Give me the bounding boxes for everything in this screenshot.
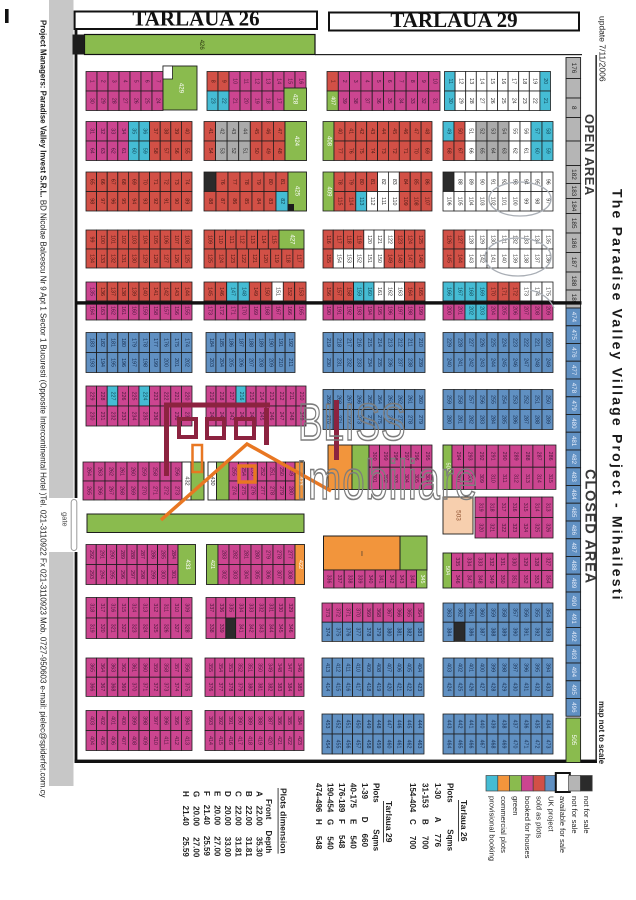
svg-text:423: 423 (296, 736, 302, 745)
svg-text:226: 226 (479, 338, 485, 347)
svg-text:120: 120 (366, 235, 372, 244)
svg-text:190: 190 (267, 338, 273, 347)
svg-text:88: 88 (207, 198, 213, 204)
svg-text:141: 141 (490, 254, 496, 263)
svg-text:409: 409 (326, 186, 332, 197)
svg-text:257: 257 (468, 395, 474, 404)
svg-text:351: 351 (511, 575, 517, 584)
svg-text:260: 260 (130, 467, 136, 476)
svg-text:326: 326 (163, 624, 169, 633)
svg-text:328: 328 (184, 624, 190, 633)
svg-text:288: 288 (129, 550, 135, 559)
svg-text:210: 210 (277, 358, 283, 367)
svg-text:308: 308 (287, 570, 293, 579)
svg-text:304: 304 (243, 570, 249, 579)
svg-text:79: 79 (255, 179, 261, 185)
svg-text:363: 363 (110, 663, 116, 672)
svg-text:373: 373 (163, 682, 169, 691)
svg-text:332: 332 (488, 557, 494, 566)
svg-text:116: 116 (325, 235, 331, 243)
svg-text:309: 309 (184, 603, 190, 612)
svg-text:444: 444 (416, 720, 422, 729)
svg-text:324: 324 (141, 624, 147, 633)
svg-text:504: 504 (444, 566, 450, 575)
svg-text:209: 209 (545, 306, 551, 315)
svg-text:496: 496 (570, 702, 577, 713)
svg-text:147: 147 (407, 254, 413, 263)
svg-text:157: 157 (335, 287, 341, 296)
svg-text:175: 175 (545, 287, 551, 296)
svg-text:381: 381 (256, 682, 262, 691)
svg-text:113: 113 (249, 235, 255, 243)
svg-text:106: 106 (446, 197, 452, 206)
svg-text:474: 474 (570, 312, 577, 323)
svg-text:233: 233 (120, 412, 126, 421)
svg-text:96: 96 (545, 179, 551, 185)
svg-text:3: 3 (352, 80, 358, 83)
svg-text:317: 317 (99, 603, 105, 612)
svg-text:329: 329 (287, 603, 293, 612)
svg-text:401: 401 (110, 716, 116, 725)
svg-text:168: 168 (468, 287, 474, 296)
svg-text:46: 46 (402, 128, 408, 134)
svg-text:391: 391 (523, 627, 529, 636)
svg-text:277: 277 (287, 550, 293, 559)
svg-text:55: 55 (512, 128, 518, 134)
svg-text:27: 27 (479, 98, 485, 104)
svg-text:261: 261 (119, 467, 125, 476)
svg-text:340: 340 (367, 575, 373, 584)
svg-text:290: 290 (109, 550, 115, 559)
svg-text:348: 348 (276, 663, 282, 672)
svg-text:46: 46 (265, 128, 271, 134)
svg-text:353: 353 (227, 663, 233, 672)
svg-text:209: 209 (267, 358, 273, 367)
svg-text:141: 141 (152, 287, 158, 296)
svg-text:463: 463 (416, 740, 422, 749)
svg-text:259: 259 (446, 395, 452, 404)
svg-text:69: 69 (424, 148, 430, 154)
svg-text:73: 73 (380, 148, 386, 154)
svg-text:198: 198 (141, 358, 147, 367)
svg-text:318: 318 (88, 603, 94, 612)
svg-text:99: 99 (88, 237, 94, 243)
svg-text:279: 279 (278, 486, 284, 495)
svg-text:158: 158 (152, 306, 158, 315)
svg-text:321: 321 (110, 624, 116, 633)
svg-text:164: 164 (88, 306, 94, 315)
svg-text:251: 251 (534, 395, 540, 404)
svg-text:85: 85 (413, 179, 419, 185)
svg-text:Plots Sqms: Plots Sqms (446, 783, 455, 852)
svg-text:360: 360 (141, 663, 147, 672)
svg-text:278: 278 (407, 415, 413, 424)
svg-text:192: 192 (287, 338, 293, 347)
svg-text:379: 379 (375, 627, 381, 636)
svg-text:92: 92 (152, 198, 158, 204)
svg-text:Tarlaua 29: Tarlaua 29 (384, 801, 394, 843)
svg-text:314: 314 (533, 503, 539, 512)
svg-text:82: 82 (279, 198, 285, 204)
svg-text:122: 122 (386, 235, 392, 244)
svg-text:125: 125 (417, 235, 423, 244)
svg-text:D 20.00 33.00: D 20.00 33.00 (223, 791, 232, 857)
svg-text:261: 261 (407, 395, 413, 404)
svg-text:334: 334 (238, 603, 244, 612)
svg-text:110: 110 (391, 197, 397, 205)
svg-text:117: 117 (295, 254, 301, 262)
svg-text:406: 406 (110, 736, 116, 745)
svg-text:220: 220 (545, 338, 551, 347)
svg-text:451: 451 (345, 720, 351, 729)
svg-text:358: 358 (163, 663, 169, 672)
svg-text:465: 465 (457, 740, 463, 749)
svg-text:311: 311 (501, 474, 507, 482)
svg-text:255: 255 (231, 467, 237, 476)
svg-text:124: 124 (218, 254, 224, 263)
svg-text:312: 312 (152, 603, 158, 612)
svg-text:173: 173 (207, 306, 213, 315)
svg-text:186: 186 (228, 338, 234, 347)
svg-text:398: 398 (501, 663, 507, 672)
svg-text:71: 71 (152, 179, 158, 185)
svg-text:54: 54 (207, 148, 213, 154)
svg-text:101: 101 (501, 197, 507, 206)
svg-text:143: 143 (468, 254, 474, 263)
svg-text:57: 57 (163, 148, 169, 154)
svg-text:329: 329 (522, 557, 528, 566)
svg-text:203: 203 (479, 306, 485, 315)
svg-text:75: 75 (358, 148, 364, 154)
svg-text:446: 446 (396, 720, 402, 729)
svg-text:481: 481 (570, 436, 577, 447)
svg-text:374: 374 (173, 682, 179, 691)
svg-text:32: 32 (420, 98, 426, 104)
svg-text:405: 405 (406, 663, 412, 672)
svg-text:262: 262 (108, 467, 114, 476)
svg-text:107: 107 (424, 197, 430, 206)
svg-text:70: 70 (413, 148, 419, 154)
svg-text:B 22.00 31.81: B 22.00 31.81 (244, 791, 253, 857)
svg-text:236: 236 (152, 412, 158, 421)
svg-text:15: 15 (287, 78, 293, 84)
svg-text:403: 403 (446, 663, 452, 672)
svg-text:159: 159 (356, 287, 362, 296)
svg-text:183: 183 (88, 338, 94, 347)
svg-text:333: 333 (477, 557, 483, 566)
svg-text:123: 123 (229, 254, 235, 263)
svg-text:187: 187 (238, 338, 244, 347)
svg-text:12: 12 (254, 78, 260, 84)
svg-text:128: 128 (468, 235, 474, 244)
svg-text:404: 404 (88, 736, 94, 745)
svg-text:457: 457 (355, 740, 361, 749)
svg-text:86: 86 (424, 179, 430, 185)
svg-text:83: 83 (267, 198, 273, 204)
svg-text:Project Managers: Paradise Val: Project Managers: Paradise Valley Invest… (39, 20, 48, 798)
svg-text:413: 413 (324, 663, 330, 672)
svg-text:14: 14 (276, 78, 282, 84)
svg-text:163: 163 (99, 306, 105, 315)
svg-text:24: 24 (155, 98, 161, 104)
svg-text:224: 224 (141, 392, 147, 401)
svg-text:245: 245 (501, 358, 507, 367)
svg-text:213: 213 (268, 392, 274, 401)
svg-text:393: 393 (545, 627, 551, 636)
svg-text:1-39 D 660: 1-39 D 660 (360, 783, 369, 848)
svg-text:385: 385 (296, 682, 302, 691)
svg-text:484: 484 (570, 489, 577, 500)
svg-text:303: 303 (232, 570, 238, 579)
svg-text:Front Depth: Front Depth (264, 799, 273, 853)
svg-text:289: 289 (545, 415, 551, 424)
svg-text:70: 70 (141, 179, 147, 185)
svg-text:400: 400 (479, 663, 485, 672)
svg-text:315: 315 (120, 603, 126, 612)
svg-text:20: 20 (542, 78, 548, 84)
svg-text:392: 392 (534, 627, 540, 636)
svg-text:2: 2 (100, 80, 106, 83)
svg-text:66: 66 (99, 179, 105, 185)
svg-text:354: 354 (544, 575, 550, 584)
svg-text:3: 3 (111, 80, 117, 83)
svg-text:402: 402 (457, 663, 463, 672)
svg-text:413: 413 (184, 736, 190, 745)
svg-text:311: 311 (163, 604, 169, 612)
svg-text:341: 341 (377, 575, 383, 584)
svg-text:123: 123 (397, 235, 403, 244)
svg-text:280: 280 (446, 415, 452, 424)
svg-text:417: 417 (355, 682, 361, 691)
svg-text:285: 285 (160, 550, 166, 559)
svg-text:426: 426 (468, 682, 474, 691)
svg-text:434: 434 (545, 720, 551, 729)
svg-text:421: 421 (276, 736, 282, 745)
svg-text:18: 18 (265, 98, 271, 104)
svg-text:138: 138 (120, 287, 126, 296)
svg-text:417: 417 (237, 736, 243, 745)
svg-text:373: 373 (324, 608, 330, 617)
svg-text:154: 154 (335, 254, 341, 263)
svg-text:105: 105 (152, 235, 158, 244)
svg-text:230: 230 (325, 358, 331, 367)
svg-text:223: 223 (512, 338, 518, 347)
svg-text:220: 220 (184, 392, 190, 401)
svg-text:145: 145 (207, 287, 213, 296)
svg-text:332: 332 (257, 603, 263, 612)
svg-text:283: 283 (221, 550, 227, 559)
svg-text:278: 278 (268, 486, 274, 495)
svg-text:242: 242 (468, 358, 474, 367)
svg-text:81: 81 (369, 179, 375, 185)
svg-text:16: 16 (298, 78, 304, 84)
svg-text:128: 128 (152, 254, 158, 263)
svg-text:234: 234 (366, 358, 372, 367)
svg-text:322: 322 (120, 624, 126, 633)
svg-text:137: 137 (534, 254, 540, 263)
svg-text:65: 65 (88, 179, 94, 185)
svg-text:available for sale: available for sale (558, 796, 567, 853)
svg-text:152: 152 (286, 287, 292, 296)
svg-text:284: 284 (490, 415, 496, 424)
svg-text:2: 2 (341, 80, 347, 83)
svg-text:211: 211 (288, 392, 294, 400)
svg-text:264: 264 (86, 467, 92, 476)
svg-text:22: 22 (532, 98, 538, 104)
svg-text:494: 494 (570, 667, 577, 678)
svg-text:455: 455 (334, 740, 340, 749)
svg-text:396: 396 (523, 663, 529, 672)
svg-text:18: 18 (521, 78, 527, 84)
svg-text:409: 409 (365, 663, 371, 672)
svg-text:148: 148 (397, 254, 403, 263)
svg-text:232: 232 (346, 358, 352, 367)
svg-text:420: 420 (385, 682, 391, 691)
svg-text:228: 228 (99, 392, 105, 401)
svg-text:267: 267 (108, 486, 114, 495)
svg-text:52: 52 (479, 128, 485, 134)
svg-text:200: 200 (163, 358, 169, 367)
svg-text:402: 402 (99, 716, 105, 725)
svg-text:378: 378 (227, 682, 233, 691)
svg-text:22: 22 (221, 98, 227, 104)
svg-text:126: 126 (173, 254, 179, 263)
svg-text:119: 119 (273, 254, 279, 262)
svg-text:316: 316 (511, 503, 517, 512)
svg-text:380: 380 (385, 627, 391, 636)
svg-text:385: 385 (286, 716, 292, 725)
svg-text:50: 50 (253, 148, 259, 154)
svg-text:328: 328 (533, 557, 539, 566)
svg-text:248: 248 (288, 412, 294, 421)
svg-text:431: 431 (523, 682, 529, 691)
svg-text:362: 362 (457, 608, 463, 617)
svg-text:175: 175 (173, 338, 179, 347)
svg-text:60: 60 (534, 148, 540, 154)
svg-text:307: 307 (276, 570, 282, 579)
svg-text:39: 39 (341, 98, 347, 104)
svg-text:45: 45 (253, 128, 259, 134)
svg-text:21: 21 (232, 98, 238, 104)
svg-text:207: 207 (248, 358, 254, 367)
svg-text:19: 19 (254, 98, 260, 104)
svg-text:94: 94 (131, 198, 137, 204)
svg-text:H 21.40 25.59: H 21.40 25.59 (181, 791, 190, 857)
svg-text:416: 416 (345, 682, 351, 691)
svg-text:229: 229 (446, 338, 452, 347)
svg-text:399: 399 (490, 663, 496, 672)
svg-text:458: 458 (365, 740, 371, 749)
svg-text:231: 231 (335, 358, 341, 367)
svg-text:176: 176 (163, 338, 169, 347)
svg-text:91: 91 (163, 198, 169, 204)
svg-text:139: 139 (131, 287, 137, 296)
svg-text:150: 150 (263, 287, 269, 296)
svg-text:288: 288 (524, 452, 530, 461)
svg-text:293: 293 (88, 570, 94, 579)
svg-text:460: 460 (385, 740, 391, 749)
svg-text:56: 56 (173, 148, 179, 154)
svg-text:243: 243 (479, 358, 485, 367)
svg-text:375: 375 (334, 627, 340, 636)
svg-text:31: 31 (431, 98, 437, 104)
svg-text:7: 7 (155, 80, 161, 83)
svg-text:86: 86 (231, 198, 237, 204)
svg-text:197: 197 (397, 306, 403, 315)
svg-text:72: 72 (163, 179, 169, 185)
svg-text:372: 372 (334, 608, 340, 617)
svg-text:394: 394 (545, 663, 551, 672)
svg-text:335: 335 (454, 557, 460, 566)
svg-text:406: 406 (396, 663, 402, 672)
svg-text:132: 132 (110, 254, 116, 263)
svg-text:478: 478 (570, 383, 577, 394)
svg-text:196: 196 (386, 306, 392, 315)
svg-text:433: 433 (184, 559, 190, 570)
svg-text:25: 25 (500, 98, 506, 104)
svg-text:435: 435 (534, 720, 540, 729)
svg-text:230: 230 (88, 412, 94, 421)
svg-text:61: 61 (120, 148, 126, 154)
svg-text:62: 62 (110, 148, 116, 154)
svg-text:78: 78 (243, 179, 249, 185)
svg-text:36: 36 (141, 128, 147, 134)
svg-text:364: 364 (99, 663, 105, 672)
svg-text:29: 29 (457, 98, 463, 104)
svg-text:232: 232 (110, 412, 116, 421)
svg-text:461: 461 (396, 740, 402, 749)
svg-text:294: 294 (98, 570, 104, 579)
svg-text:130: 130 (490, 235, 496, 244)
svg-text:242: 242 (228, 412, 234, 421)
svg-text:479: 479 (570, 400, 577, 411)
svg-text:215: 215 (248, 392, 254, 401)
svg-text:81: 81 (279, 179, 285, 185)
svg-text:44: 44 (242, 128, 248, 134)
svg-text:169: 169 (479, 287, 485, 296)
svg-text:357: 357 (173, 663, 179, 672)
svg-text:381: 381 (396, 627, 402, 636)
svg-text:77: 77 (336, 148, 342, 154)
svg-text:183: 183 (570, 186, 577, 197)
svg-text:223: 223 (152, 392, 158, 401)
svg-text:227: 227 (468, 338, 474, 347)
svg-text:445: 445 (406, 720, 412, 729)
svg-text:201: 201 (457, 306, 463, 315)
svg-text:279: 279 (417, 415, 423, 424)
svg-text:33: 33 (110, 128, 116, 134)
svg-text:390: 390 (512, 627, 518, 636)
svg-text:100: 100 (512, 197, 518, 206)
svg-text:74: 74 (369, 148, 375, 154)
svg-text:C 22.00 31.81: C 22.00 31.81 (234, 791, 243, 857)
svg-text:162: 162 (110, 306, 116, 315)
svg-text:313: 313 (141, 603, 147, 612)
svg-text:244: 244 (490, 358, 496, 367)
svg-text:171: 171 (229, 306, 235, 315)
svg-text:448: 448 (375, 720, 381, 729)
svg-text:427: 427 (289, 234, 295, 245)
svg-text:344: 344 (409, 575, 415, 584)
svg-text:250: 250 (545, 395, 551, 404)
svg-text:211: 211 (407, 338, 413, 346)
svg-text:222: 222 (163, 392, 169, 401)
svg-text:286: 286 (547, 452, 553, 461)
svg-text:184: 184 (208, 338, 214, 347)
svg-text:415: 415 (334, 682, 340, 691)
svg-text:258: 258 (152, 467, 158, 476)
svg-text:370: 370 (355, 608, 361, 617)
